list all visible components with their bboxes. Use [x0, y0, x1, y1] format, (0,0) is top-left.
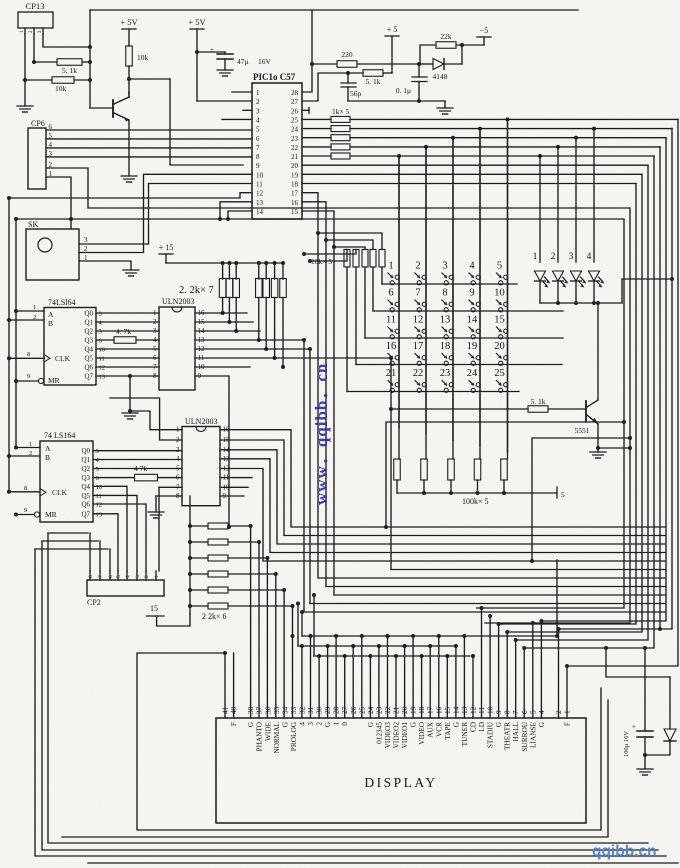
- svg-text:Q1: Q1: [84, 319, 93, 327]
- svg-text:7: 7: [98, 575, 104, 578]
- svg-text:4: 4: [256, 116, 260, 124]
- svg-text:G: G: [537, 721, 546, 727]
- svg-text:CP6: CP6: [31, 119, 45, 128]
- svg-text:4: 4: [153, 336, 157, 344]
- svg-text:2: 2: [84, 245, 88, 253]
- svg-text:8: 8: [27, 351, 30, 358]
- svg-text:4: 4: [469, 261, 475, 272]
- svg-text:2: 2: [415, 261, 420, 272]
- svg-text:1: 1: [533, 252, 538, 262]
- svg-text:Q5: Q5: [81, 492, 90, 500]
- svg-text:11: 11: [256, 181, 263, 189]
- svg-text:74LSl64: 74LSl64: [48, 298, 76, 307]
- svg-text:8: 8: [88, 575, 94, 578]
- svg-text:16: 16: [291, 199, 299, 207]
- svg-text:13: 13: [440, 315, 451, 326]
- svg-text:+ 5V: + 5V: [120, 17, 138, 27]
- svg-text:7: 7: [415, 288, 420, 299]
- svg-text:16V: 16V: [258, 57, 272, 66]
- svg-text:15: 15: [494, 315, 505, 326]
- svg-text:5: 5: [561, 490, 565, 499]
- svg-text:Q7: Q7: [81, 510, 90, 518]
- svg-text:qqibb.cn: qqibb.cn: [592, 843, 657, 860]
- svg-text:19: 19: [467, 341, 478, 352]
- svg-text:22k: 22k: [440, 32, 452, 41]
- svg-text:10: 10: [96, 484, 103, 491]
- svg-text:Q2: Q2: [81, 465, 90, 473]
- svg-text:6: 6: [388, 288, 393, 299]
- svg-text:27: 27: [291, 98, 299, 106]
- svg-text:8: 8: [256, 153, 260, 161]
- svg-text:5: 5: [176, 465, 180, 473]
- svg-text:74 LS164: 74 LS164: [44, 431, 75, 440]
- svg-text:4. 7k: 4. 7k: [116, 327, 131, 336]
- svg-text:8: 8: [153, 372, 157, 380]
- svg-text:23: 23: [440, 368, 451, 379]
- svg-text:10k: 10k: [137, 53, 149, 62]
- svg-text:1: 1: [388, 261, 393, 272]
- svg-text:+: +: [210, 46, 214, 54]
- svg-text:9: 9: [24, 507, 27, 514]
- svg-text:5: 5: [153, 345, 157, 353]
- svg-text:F: F: [229, 722, 238, 726]
- svg-text:12: 12: [413, 315, 424, 326]
- svg-text:12: 12: [99, 365, 106, 372]
- svg-text:Q4: Q4: [81, 483, 90, 491]
- svg-text:11: 11: [386, 315, 396, 326]
- svg-text:PIC1о C57: PIC1о C57: [253, 72, 296, 82]
- svg-text:15: 15: [291, 208, 299, 216]
- svg-text:2: 2: [153, 318, 157, 326]
- svg-text:14: 14: [467, 315, 478, 326]
- svg-text:F: F: [563, 722, 572, 726]
- svg-text:10: 10: [99, 347, 106, 354]
- svg-text:20: 20: [291, 162, 299, 170]
- svg-text:5. 1k: 5. 1k: [366, 77, 381, 86]
- svg-text:9: 9: [256, 162, 260, 170]
- svg-text:Q6: Q6: [81, 501, 90, 509]
- svg-text:12: 12: [256, 190, 264, 198]
- svg-text:25: 25: [494, 368, 505, 379]
- svg-text:5: 5: [497, 261, 502, 272]
- svg-text:22: 22: [291, 144, 299, 152]
- svg-text:17: 17: [413, 341, 424, 352]
- svg-text:10k: 10k: [55, 84, 67, 93]
- svg-text:3: 3: [153, 327, 157, 335]
- svg-text:5: 5: [99, 329, 102, 336]
- svg-text:5: 5: [96, 466, 99, 473]
- svg-text:1: 1: [154, 575, 160, 578]
- svg-text:12: 12: [96, 502, 103, 509]
- svg-text:4: 4: [176, 455, 180, 463]
- svg-text:5. 1k: 5. 1k: [531, 397, 546, 406]
- svg-text:1: 1: [33, 304, 36, 311]
- svg-text:10: 10: [256, 171, 264, 179]
- svg-text:CP2: CP2: [87, 598, 101, 607]
- svg-text:6: 6: [176, 474, 180, 482]
- svg-text:17: 17: [291, 190, 299, 198]
- svg-text:3: 3: [442, 261, 447, 272]
- svg-text:Q3: Q3: [81, 474, 90, 482]
- svg-text:Q1: Q1: [81, 456, 90, 464]
- svg-text:5: 5: [116, 575, 122, 578]
- svg-text:22: 22: [413, 368, 424, 379]
- svg-text:1: 1: [256, 89, 260, 97]
- svg-text:MR: MR: [48, 376, 60, 385]
- svg-text:5. 1k: 5. 1k: [62, 66, 77, 75]
- svg-text:2: 2: [256, 98, 260, 106]
- svg-text:+ 15: + 15: [159, 243, 174, 252]
- svg-text:9: 9: [27, 373, 30, 380]
- svg-text:A: A: [45, 444, 51, 453]
- svg-text:25: 25: [291, 116, 299, 124]
- svg-text:2 2k× 6: 2 2k× 6: [202, 612, 227, 621]
- svg-text:9: 9: [469, 288, 474, 299]
- svg-text:26: 26: [291, 107, 299, 115]
- svg-text:3: 3: [176, 446, 180, 454]
- svg-text:A: A: [48, 310, 54, 319]
- svg-text:4 7k: 4 7k: [134, 464, 147, 473]
- svg-text:40: 40: [229, 706, 238, 714]
- svg-text:28: 28: [291, 89, 299, 97]
- svg-text:3: 3: [96, 448, 99, 455]
- svg-text:24: 24: [291, 126, 299, 134]
- svg-text:3: 3: [84, 236, 88, 244]
- svg-text:2: 2: [144, 575, 150, 578]
- svg-text:15: 15: [150, 604, 158, 613]
- svg-text:11: 11: [99, 356, 105, 363]
- svg-text:16: 16: [386, 341, 397, 352]
- svg-text:11: 11: [96, 493, 102, 500]
- svg-text:47μ: 47μ: [237, 57, 249, 66]
- svg-text:Q3: Q3: [84, 337, 93, 345]
- svg-text:56p: 56p: [350, 89, 362, 98]
- svg-text:4: 4: [587, 252, 592, 262]
- svg-text:Q7: Q7: [84, 373, 93, 381]
- svg-text:Q2: Q2: [84, 328, 93, 336]
- svg-text:Q6: Q6: [84, 364, 93, 372]
- svg-text:www．qqibb．cn: www．qqibb．cn: [312, 363, 331, 505]
- svg-text:3: 3: [99, 311, 102, 318]
- svg-text:3: 3: [135, 575, 141, 578]
- svg-text:24: 24: [467, 368, 478, 379]
- svg-text:14: 14: [256, 208, 264, 216]
- svg-text:100μ 16V: 100μ 16V: [623, 731, 630, 757]
- svg-text:5551: 5551: [575, 426, 590, 435]
- svg-text:CP13: CP13: [26, 1, 45, 11]
- svg-text:+: +: [632, 723, 636, 731]
- svg-text:ULN2003: ULN2003: [185, 417, 217, 426]
- svg-text:0: 0: [340, 722, 349, 726]
- svg-text:CLK: CLK: [55, 354, 71, 363]
- svg-text:Q0: Q0: [84, 310, 93, 318]
- svg-text:1: 1: [563, 710, 572, 714]
- svg-text:220: 220: [341, 50, 353, 59]
- svg-text:Q0: Q0: [81, 447, 90, 455]
- svg-text:19: 19: [291, 171, 299, 179]
- svg-text:8: 8: [24, 485, 27, 492]
- svg-text:21: 21: [291, 153, 299, 161]
- svg-text:+ 5V: + 5V: [188, 17, 206, 27]
- svg-text:Q5: Q5: [84, 355, 93, 363]
- svg-text:3: 3: [256, 107, 260, 115]
- svg-text:13: 13: [99, 374, 106, 381]
- svg-text:5: 5: [256, 126, 260, 134]
- svg-text:7: 7: [153, 363, 157, 371]
- svg-text:SK: SK: [28, 220, 38, 229]
- svg-text:DISPLAY: DISPLAY: [364, 775, 437, 790]
- svg-text:7: 7: [256, 144, 260, 152]
- svg-text:13: 13: [96, 511, 103, 518]
- svg-text:8: 8: [442, 288, 447, 299]
- svg-text:3: 3: [569, 252, 574, 262]
- svg-text:4: 4: [537, 710, 546, 714]
- svg-text:CLK: CLK: [52, 488, 68, 497]
- svg-text:ULN2003: ULN2003: [162, 297, 194, 306]
- svg-text:2: 2: [551, 252, 556, 262]
- svg-text:1k× 5: 1k× 5: [332, 107, 350, 116]
- svg-text:20: 20: [494, 341, 505, 352]
- svg-text:13: 13: [256, 199, 264, 207]
- svg-text:2. 2k× 7: 2. 2k× 7: [179, 285, 214, 296]
- svg-text:−5: −5: [480, 26, 489, 35]
- svg-text:Q4: Q4: [84, 346, 93, 354]
- svg-text:6: 6: [153, 354, 157, 362]
- svg-text:1: 1: [153, 309, 157, 317]
- svg-text:B: B: [45, 453, 50, 462]
- svg-text:18: 18: [291, 181, 299, 189]
- svg-text:MR: MR: [45, 510, 57, 519]
- svg-text:10: 10: [494, 288, 505, 299]
- svg-text:B: B: [48, 319, 53, 328]
- svg-text:0. 1μ: 0. 1μ: [396, 86, 411, 95]
- svg-text:10k× 5: 10k× 5: [311, 257, 332, 266]
- svg-text:+ 5: + 5: [387, 25, 398, 34]
- svg-text:23: 23: [291, 135, 299, 143]
- svg-text:6: 6: [108, 575, 114, 578]
- svg-text:100k× 5: 100k× 5: [462, 497, 489, 506]
- svg-text:4148: 4148: [433, 72, 448, 81]
- svg-text:18: 18: [440, 341, 451, 352]
- svg-text:6: 6: [256, 135, 260, 143]
- svg-text:4: 4: [125, 575, 131, 578]
